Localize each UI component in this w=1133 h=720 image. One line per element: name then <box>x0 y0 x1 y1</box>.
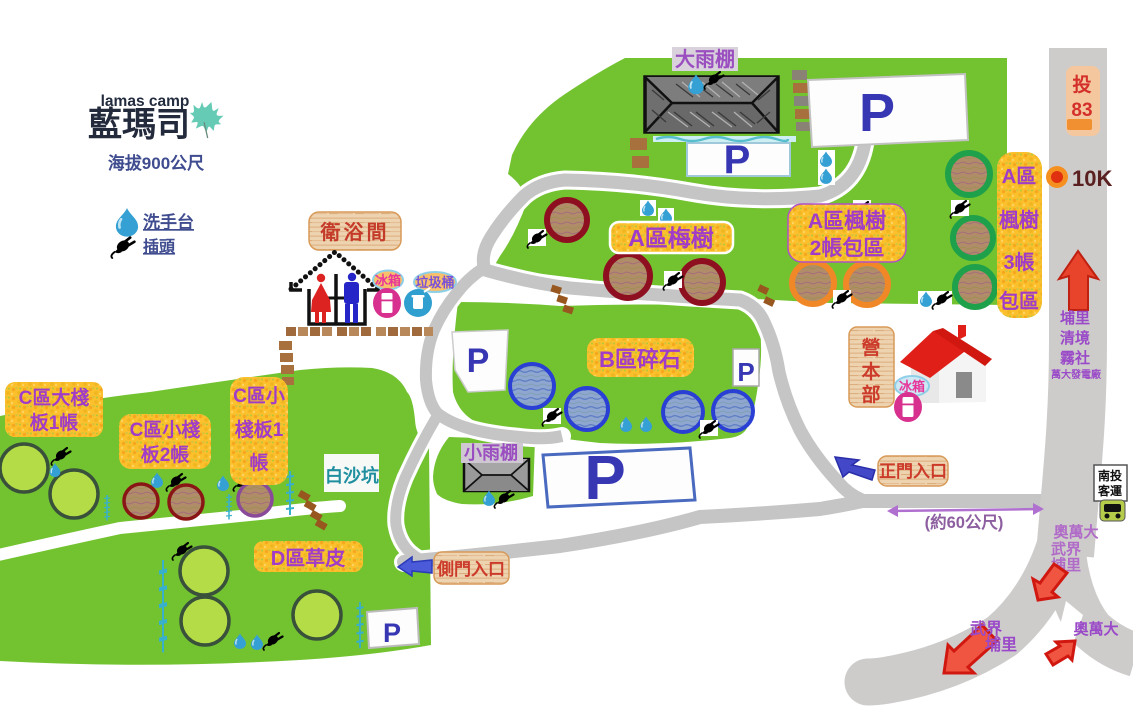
svg-text:板2帳: 板2帳 <box>141 443 190 466</box>
svg-text:A區楓樹: A區楓樹 <box>808 209 886 233</box>
svg-text:正門入口: 正門入口 <box>879 462 947 481</box>
svg-text:部: 部 <box>861 383 880 406</box>
svg-text:本: 本 <box>861 360 880 383</box>
svg-text:B區碎石: B區碎石 <box>599 347 681 372</box>
svg-text:垃圾桶: 垃圾桶 <box>415 275 454 290</box>
svg-text:南投: 南投 <box>1098 468 1122 483</box>
svg-text:A區梅樹: A區梅樹 <box>628 225 714 251</box>
svg-text:P: P <box>383 618 401 648</box>
svg-text:埔里: 埔里 <box>1060 309 1090 327</box>
svg-text:奧萬大: 奧萬大 <box>1073 620 1118 638</box>
svg-text:包區: 包區 <box>999 289 1039 313</box>
svg-text:P: P <box>724 138 751 182</box>
svg-text:洗手台: 洗手台 <box>143 212 194 232</box>
svg-text:營: 營 <box>861 336 880 359</box>
svg-text:客運: 客運 <box>1097 483 1122 498</box>
svg-text:C區小: C區小 <box>233 385 285 407</box>
svg-text:冰箱: 冰箱 <box>899 379 925 394</box>
svg-text:棧板1: 棧板1 <box>235 418 284 441</box>
svg-text:P: P <box>467 342 490 380</box>
svg-text:大雨棚: 大雨棚 <box>675 47 735 71</box>
svg-text:D區草皮: D區草皮 <box>271 546 345 570</box>
svg-text:P: P <box>859 83 895 143</box>
svg-text:投: 投 <box>1072 73 1091 96</box>
svg-text:小雨棚: 小雨棚 <box>464 442 518 463</box>
svg-text:衛浴間: 衛浴間 <box>320 220 390 244</box>
svg-text:奧萬大: 奧萬大 <box>1053 523 1098 541</box>
svg-text:武界: 武界 <box>1051 540 1081 558</box>
svg-text:萬大發電廠: 萬大發電廠 <box>1051 368 1102 381</box>
svg-text:P: P <box>584 444 625 513</box>
svg-text:83: 83 <box>1071 100 1092 121</box>
svg-text:板1帳: 板1帳 <box>30 411 79 434</box>
svg-text:3帳: 3帳 <box>1003 250 1034 274</box>
svg-text:帳: 帳 <box>249 451 268 474</box>
svg-text:清境: 清境 <box>1060 329 1090 347</box>
svg-text:10K: 10K <box>1072 166 1112 191</box>
svg-text:冰箱: 冰箱 <box>375 273 401 288</box>
svg-text:C區大棧: C區大棧 <box>19 386 90 409</box>
svg-text:2帳包區: 2帳包區 <box>810 236 885 260</box>
svg-text:楓樹: 楓樹 <box>999 208 1039 232</box>
svg-text:藍瑪司: 藍瑪司 <box>88 106 190 144</box>
svg-text:C區小棧: C區小棧 <box>130 418 201 441</box>
svg-text:插頭: 插頭 <box>143 237 176 256</box>
svg-text:側門入口: 側門入口 <box>436 559 505 579</box>
svg-text:霧社: 霧社 <box>1060 349 1090 367</box>
svg-text:埔里: 埔里 <box>985 635 1017 654</box>
svg-text:海拔900公尺: 海拔900公尺 <box>108 153 204 173</box>
svg-text:P: P <box>737 357 754 387</box>
svg-text:武界: 武界 <box>970 619 1002 638</box>
svg-text:(約60公尺): (約60公尺) <box>925 512 1004 532</box>
svg-text:白沙坑: 白沙坑 <box>325 465 379 486</box>
svg-text:A區: A區 <box>1002 166 1036 188</box>
